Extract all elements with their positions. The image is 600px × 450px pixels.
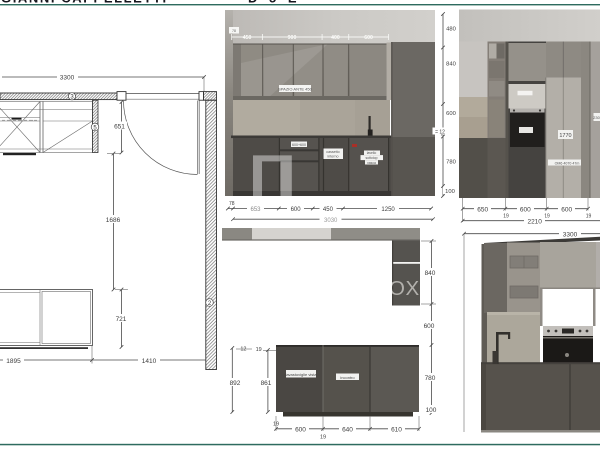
svg-text:450: 450: [323, 207, 334, 213]
svg-text:OM6 4070 47m: OM6 4070 47m: [555, 161, 580, 165]
svg-text:3300: 3300: [563, 231, 578, 238]
svg-text:721: 721: [116, 316, 127, 323]
svg-text:653: 653: [250, 207, 261, 213]
svg-text:100: 100: [445, 189, 455, 195]
svg-text:cassetto: cassetto: [326, 150, 339, 154]
svg-text:sottotop: sottotop: [365, 156, 377, 160]
svg-text:892: 892: [230, 380, 241, 387]
svg-text:450: 450: [243, 35, 252, 41]
svg-text:600: 600: [561, 206, 572, 213]
svg-text:600: 600: [424, 323, 435, 330]
svg-text:19: 19: [320, 435, 326, 441]
svg-text:= 12: = 12: [435, 129, 445, 135]
svg-text:400: 400: [331, 35, 340, 41]
svg-text:incontro: incontro: [340, 375, 355, 380]
svg-text:vasca: vasca: [367, 161, 376, 165]
svg-text:78: 78: [229, 201, 235, 207]
svg-text:19: 19: [544, 214, 550, 220]
svg-text:lavello: lavello: [367, 151, 377, 155]
svg-text:640: 640: [342, 426, 353, 433]
svg-text:900: 900: [288, 35, 297, 41]
svg-text:lavastoviglie vista: lavastoviglie vista: [285, 372, 317, 377]
svg-text:OX: OX: [389, 277, 420, 300]
svg-text:interno: interno: [328, 155, 339, 159]
svg-text:230: 230: [593, 115, 600, 120]
svg-text:600: 600: [291, 207, 302, 213]
svg-text:600: 600: [446, 111, 456, 117]
svg-text:1895: 1895: [6, 358, 21, 365]
svg-text:651: 651: [114, 124, 125, 131]
svg-text:610: 610: [391, 426, 402, 433]
svg-text:3300: 3300: [60, 75, 75, 82]
svg-text:780: 780: [446, 160, 456, 166]
svg-text:600: 600: [364, 35, 373, 41]
svg-text:861: 861: [261, 380, 272, 387]
svg-text:650: 650: [477, 206, 488, 213]
svg-text:600+600: 600+600: [292, 143, 306, 147]
svg-text:840: 840: [446, 62, 456, 68]
svg-text:19: 19: [503, 214, 509, 220]
svg-text:19: 19: [273, 421, 279, 427]
svg-text:12: 12: [240, 346, 246, 352]
svg-text:480: 480: [446, 27, 456, 33]
svg-text:840: 840: [425, 270, 436, 277]
svg-text:600: 600: [520, 206, 531, 213]
svg-text:3030: 3030: [324, 218, 338, 224]
svg-text:SPAZIO ANTE 450: SPAZIO ANTE 450: [278, 86, 312, 91]
svg-text:19: 19: [256, 347, 262, 353]
svg-text:1410: 1410: [142, 358, 157, 365]
svg-text:1770: 1770: [559, 133, 571, 139]
svg-text:19: 19: [586, 214, 592, 220]
svg-text:780: 780: [425, 375, 436, 382]
svg-text:100: 100: [426, 407, 437, 414]
svg-text:2210: 2210: [527, 218, 542, 225]
svg-text:1250: 1250: [381, 207, 395, 213]
svg-text:78: 78: [232, 29, 236, 33]
svg-text:600: 600: [295, 426, 306, 433]
svg-text:1686: 1686: [106, 217, 121, 224]
